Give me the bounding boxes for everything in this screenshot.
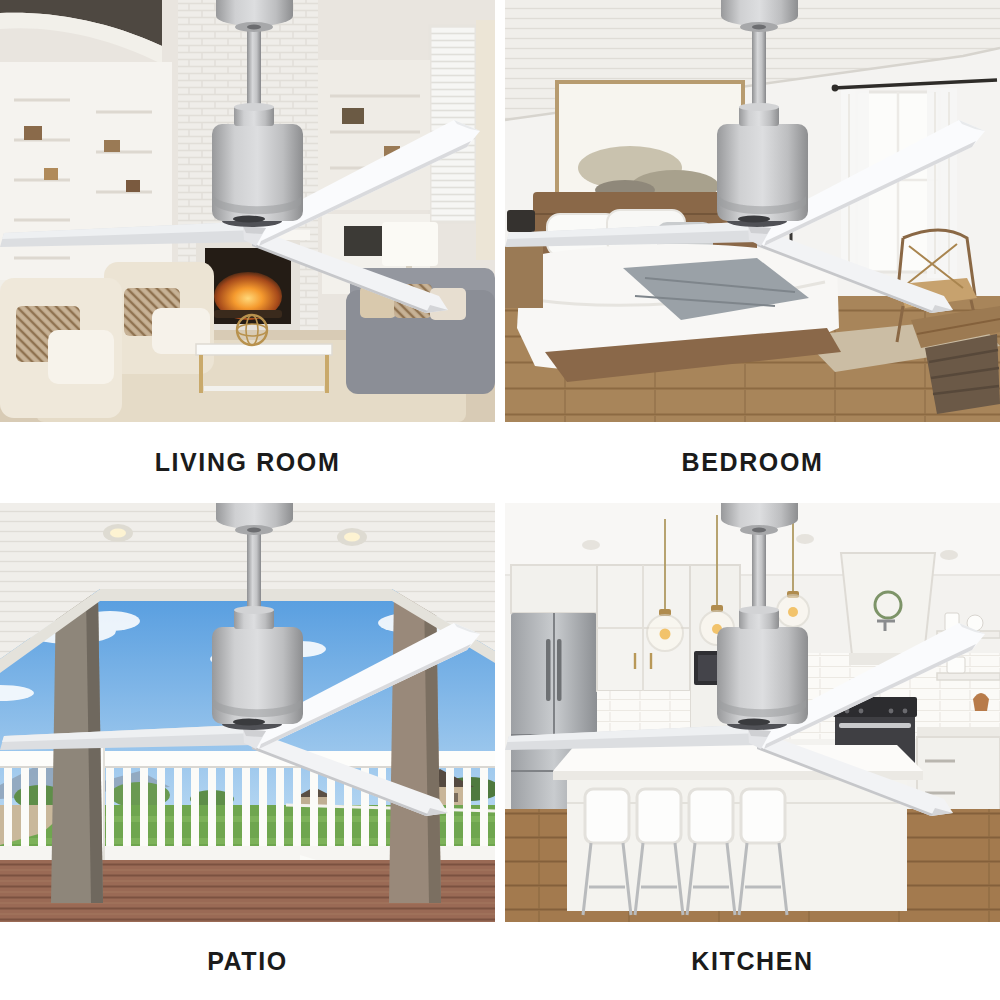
bedroom-label: BEDROOM	[505, 422, 1000, 503]
kitchen-label-text: KITCHEN	[691, 947, 813, 976]
living-room-label-text: LIVING ROOM	[155, 448, 341, 477]
ceiling-fan-overlay	[0, 0, 495, 422]
living-room-label: LIVING ROOM	[0, 422, 495, 503]
living-room-photo	[0, 0, 495, 422]
patio-photo	[0, 503, 495, 922]
kitchen-photo	[505, 503, 1000, 922]
ceiling-fan-overlay	[505, 503, 1000, 922]
bedroom-label-text: BEDROOM	[682, 448, 824, 477]
kitchen-label: KITCHEN	[505, 922, 1000, 1000]
patio-label-text: PATIO	[207, 947, 288, 976]
patio-label: PATIO	[0, 922, 495, 1000]
ceiling-fan-overlay	[0, 503, 495, 922]
ceiling-fan-overlay	[505, 0, 1000, 422]
bedroom-photo	[505, 0, 1000, 422]
room-scenes-collage: LIVING ROOM BEDROOM	[0, 0, 1000, 1000]
